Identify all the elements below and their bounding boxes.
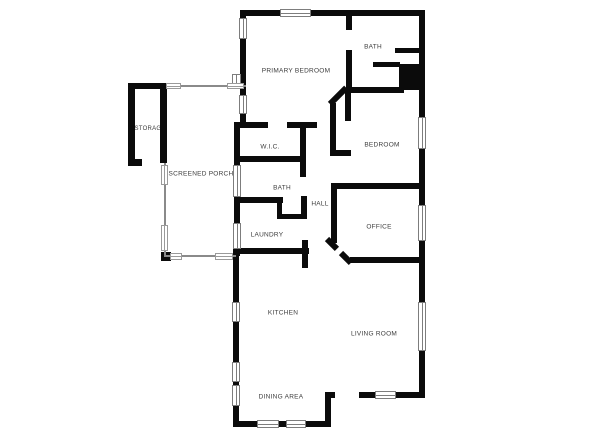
- window-marker: [418, 205, 426, 241]
- wall-segment: [300, 122, 306, 177]
- bath-fixture-block: [399, 64, 425, 90]
- window-marker: [418, 302, 426, 351]
- room-label-office: OFFICE: [366, 224, 391, 231]
- floor-plan: PRIMARY BEDROOM BATH BEDROOM W.I.C. STOR…: [0, 0, 600, 445]
- wall-segment: [277, 214, 307, 219]
- wall-segment: [346, 12, 352, 30]
- window-marker: [239, 18, 247, 39]
- wall-segment: [128, 159, 142, 166]
- room-label-bath-hall: BATH: [273, 185, 291, 192]
- window-marker: [286, 420, 306, 428]
- room-label-living-room: LIVING ROOM: [351, 331, 397, 338]
- window-marker: [233, 165, 241, 197]
- window-marker: [418, 117, 426, 149]
- room-label-bath-ensuite: BATH: [364, 44, 382, 51]
- wall-segment: [302, 240, 308, 268]
- wall-segment: [234, 122, 268, 128]
- room-label-dining-area: DINING AREA: [259, 394, 304, 401]
- wall-segment: [373, 62, 400, 67]
- porch-screen-panel: [161, 225, 168, 251]
- wall-segment: [346, 50, 352, 92]
- wall-segment: [331, 183, 337, 243]
- wall-segment: [346, 87, 404, 93]
- room-label-kitchen: KITCHEN: [268, 310, 298, 317]
- window-marker: [233, 223, 241, 249]
- window-marker: [239, 95, 247, 114]
- wall-segment: [234, 197, 283, 203]
- wall-segment: [233, 248, 309, 254]
- room-label-screened-porch: SCREENED PORCH: [169, 171, 234, 178]
- window-marker: [232, 362, 240, 382]
- wall-segment: [234, 156, 306, 162]
- wall-segment: [395, 48, 425, 53]
- room-label-laundry: LAUNDRY: [251, 232, 284, 239]
- wall-segment: [330, 103, 336, 156]
- porch-screen-panel: [227, 83, 244, 89]
- room-label-primary-bedroom: PRIMARY BEDROOM: [262, 68, 331, 75]
- window-marker: [232, 302, 240, 322]
- porch-screen-panel: [166, 83, 181, 89]
- porch-screen-panel: [161, 165, 168, 185]
- window-marker: [375, 391, 396, 399]
- room-label-wic: W.I.C.: [260, 144, 279, 151]
- diagonal-wall-segment: [339, 251, 353, 265]
- wall-segment: [331, 183, 425, 189]
- wall-segment: [128, 83, 135, 166]
- wall-segment: [233, 421, 331, 427]
- porch-screen-panel: [215, 253, 233, 260]
- wall-segment: [350, 257, 425, 263]
- room-label-hall: HALL: [311, 201, 328, 208]
- window-marker: [280, 9, 311, 17]
- window-marker: [232, 385, 240, 406]
- wall-segment: [345, 90, 351, 121]
- window-marker: [257, 420, 279, 428]
- porch-screen-panel: [170, 253, 182, 260]
- wall-segment: [335, 150, 351, 156]
- wall-segment: [240, 10, 425, 16]
- room-label-bedroom: BEDROOM: [364, 142, 399, 149]
- wall-segment: [160, 83, 167, 163]
